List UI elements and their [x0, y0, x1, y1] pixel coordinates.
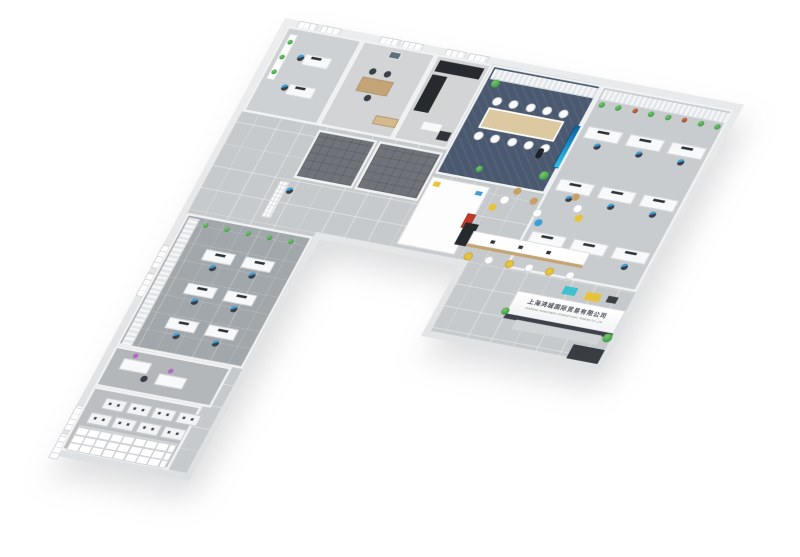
office-chair	[634, 151, 644, 158]
purple-accent	[132, 353, 139, 359]
office-chair	[189, 298, 199, 305]
office-chair	[619, 263, 629, 270]
plant	[614, 104, 623, 111]
guest-chair	[383, 71, 393, 78]
building: 上海鸿城国际贸易有限公司 SHANGHAI HONGCHENG INTERNAT…	[41, 18, 744, 557]
workstation	[178, 283, 218, 308]
desk	[624, 134, 665, 152]
plant	[278, 54, 285, 60]
plant	[681, 117, 688, 123]
workstation	[661, 142, 706, 169]
workstation	[605, 246, 650, 273]
plant	[631, 108, 638, 114]
lounge-chair	[487, 203, 498, 211]
appliance	[546, 251, 552, 255]
plant	[245, 231, 252, 237]
lounge-chair	[570, 193, 581, 201]
filing-cabinet	[101, 398, 128, 413]
workstation	[235, 257, 275, 282]
office-chair	[675, 159, 685, 166]
plant	[598, 101, 607, 108]
desk	[119, 358, 153, 374]
conference-chair	[472, 130, 486, 140]
lounge-chair	[528, 197, 539, 205]
side-cabinet	[372, 115, 400, 128]
plant	[697, 120, 706, 127]
desk	[666, 142, 707, 160]
guest-chair	[368, 68, 378, 75]
conference-chair	[540, 105, 554, 115]
workstation	[620, 134, 665, 161]
lounge-chair	[573, 214, 584, 222]
conference-chair	[557, 109, 571, 119]
bar-stool	[544, 267, 556, 276]
filing-cabinet	[135, 421, 162, 436]
wall-picture	[387, 51, 402, 60]
plant	[474, 165, 484, 172]
executive-desk	[355, 77, 394, 97]
coffee-machine	[490, 240, 496, 244]
filing-cabinet	[150, 407, 177, 422]
yellow-accent	[432, 181, 441, 187]
workstation	[160, 317, 200, 342]
filing-cabinet	[111, 417, 138, 432]
plant	[664, 114, 673, 121]
appliance	[518, 245, 524, 249]
plant	[489, 79, 501, 88]
plant	[266, 235, 273, 241]
conference-chair	[507, 99, 521, 109]
workstation	[217, 290, 257, 315]
workstation	[633, 194, 678, 221]
office-chair	[211, 340, 221, 347]
lounge-chair	[533, 219, 544, 227]
desk	[164, 317, 199, 334]
printer	[436, 131, 452, 142]
purple-accent	[167, 368, 174, 374]
plant	[287, 239, 294, 245]
bar-stool	[483, 255, 495, 264]
desk-chair	[139, 375, 149, 382]
filing-cabinet	[160, 426, 187, 441]
desk	[222, 290, 257, 307]
workstation	[199, 324, 239, 349]
plant	[286, 40, 293, 46]
filing-cabinet	[125, 402, 152, 417]
desk	[240, 257, 275, 274]
office-chair	[247, 272, 257, 279]
room-wing-office	[116, 213, 314, 369]
plant	[271, 69, 278, 75]
desk	[300, 54, 332, 70]
desk	[610, 246, 651, 264]
bar-stool	[523, 263, 535, 272]
workstation	[578, 126, 623, 153]
plant	[647, 111, 656, 118]
plant	[223, 227, 230, 233]
desk	[583, 126, 624, 144]
conference-chair	[490, 96, 504, 106]
curtains	[490, 69, 599, 99]
conference-chair	[505, 137, 519, 147]
plant	[713, 123, 722, 130]
workstation	[196, 249, 236, 274]
desk	[183, 283, 218, 300]
desk-chair	[363, 94, 373, 101]
floorplan-render: 上海鸿城国际贸易有限公司 SHANGHAI HONGCHENG INTERNAT…	[0, 0, 800, 500]
office-chair	[229, 306, 239, 313]
desk	[201, 249, 236, 266]
desk	[285, 83, 317, 99]
bar-stool	[503, 259, 515, 268]
conference-chair	[522, 140, 536, 150]
desk	[154, 373, 188, 389]
lounge-chair	[512, 187, 523, 195]
plant	[537, 171, 551, 181]
office-chair	[647, 211, 657, 218]
blue-accent	[474, 191, 483, 196]
conference-chair	[489, 133, 503, 143]
filing-cabinet	[86, 412, 113, 427]
office-chair	[171, 332, 181, 339]
office-chair	[592, 143, 602, 150]
plant	[202, 223, 209, 229]
desk	[204, 324, 239, 341]
round-table	[498, 195, 512, 205]
office-chair	[208, 265, 218, 272]
desk	[638, 194, 679, 212]
conference-chair	[524, 102, 538, 112]
round-table	[571, 204, 585, 214]
round-table	[530, 208, 544, 218]
shelf-unit	[266, 34, 299, 81]
